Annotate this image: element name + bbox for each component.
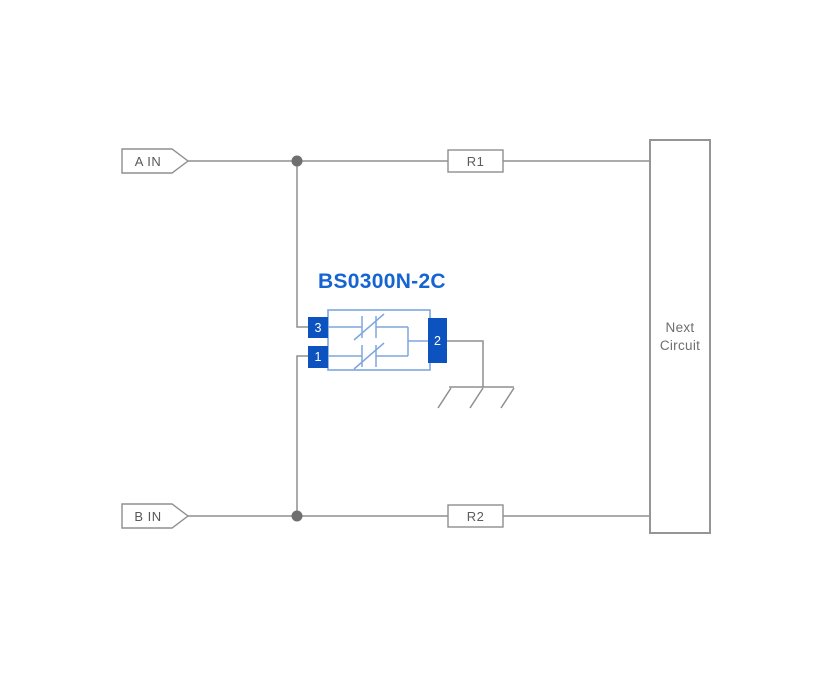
input-a-label: A IN bbox=[122, 149, 174, 173]
resistor-r1-label: R1 bbox=[448, 150, 503, 172]
next-circuit-line1: Next bbox=[666, 319, 695, 337]
chassis-ground-icon bbox=[438, 387, 514, 408]
next-circuit-line2: Circuit bbox=[660, 337, 700, 355]
pin-3-label: 3 bbox=[308, 317, 328, 338]
circuit-diagram: A IN B IN R1 R2 BS0300N-2C 3 1 2 Next Ci… bbox=[0, 0, 832, 675]
resistor-r2-label: R2 bbox=[448, 505, 503, 527]
wire-a-to-pin3 bbox=[297, 161, 308, 327]
wire-pin2-to-ground bbox=[447, 341, 483, 387]
junction-dot-bottom bbox=[292, 511, 303, 522]
pin-2-label: 2 bbox=[428, 318, 447, 363]
next-circuit-label: Next Circuit bbox=[650, 140, 710, 533]
junction-dot-top bbox=[292, 156, 303, 167]
pin-1-label: 1 bbox=[308, 346, 328, 368]
component-title: BS0300N-2C bbox=[318, 270, 478, 298]
wire-b-to-pin1 bbox=[297, 356, 308, 516]
input-b-label: B IN bbox=[122, 504, 174, 528]
